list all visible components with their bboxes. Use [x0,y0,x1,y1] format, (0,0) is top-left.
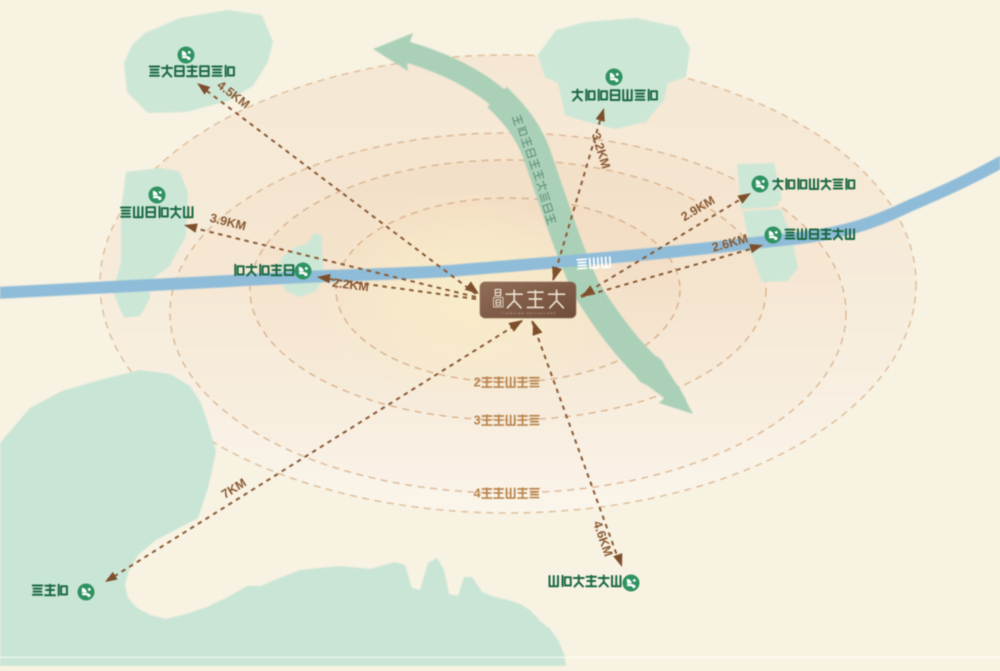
svg-text:TIANJIAN HEYUELAND: TIANJIAN HEYUELAND [501,312,557,316]
svg-text:3: 3 [474,413,481,427]
svg-text:4: 4 [474,486,481,500]
svg-text:2: 2 [474,375,481,389]
